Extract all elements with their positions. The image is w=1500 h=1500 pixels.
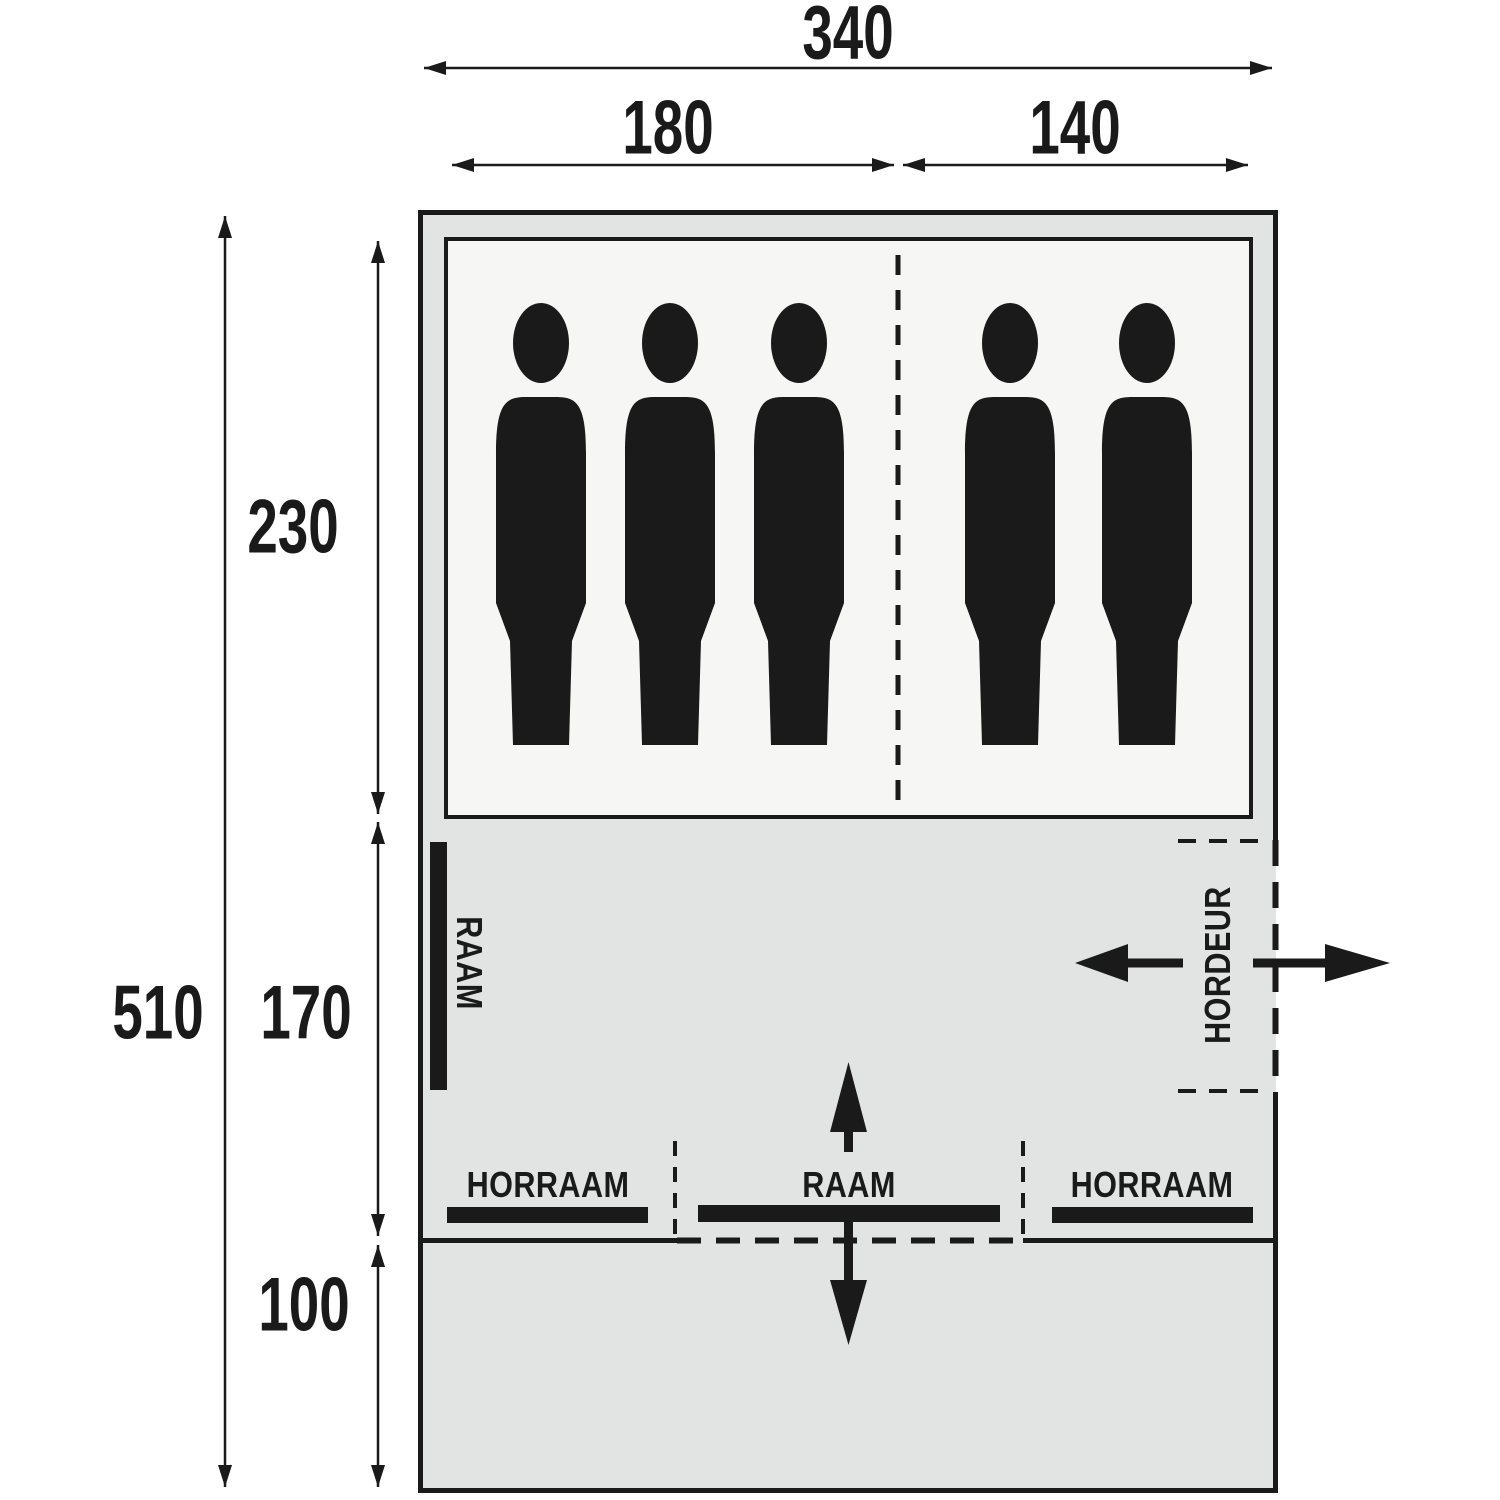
right-screen-window-label: HORRAAM	[1071, 1164, 1234, 1206]
floorplan-drawing	[0, 0, 1500, 1500]
sleeping-area	[446, 239, 1251, 817]
dim-340-label: 340	[802, 0, 893, 77]
dim-100-label: 100	[258, 1262, 349, 1349]
dim-180-label: 180	[622, 85, 713, 172]
front-window-bar	[698, 1205, 1000, 1222]
right-screen-window-bar	[1052, 1207, 1253, 1223]
tent-floorplan: 340 180 140 510 230 170 100 RAAM HORDEUR…	[0, 0, 1500, 1500]
left-screen-window-label: HORRAAM	[467, 1164, 630, 1206]
screen-door-label: HORDEUR	[1197, 886, 1239, 1044]
left-window	[430, 842, 447, 1090]
dim-170-label: 170	[260, 970, 351, 1057]
dim-510-label: 510	[112, 970, 203, 1057]
front-window-label: RAAM	[802, 1164, 895, 1206]
left-screen-window-bar	[447, 1207, 648, 1223]
left-window-label: RAAM	[448, 916, 490, 1009]
left-window-bar	[430, 842, 447, 1090]
dim-140-label: 140	[1029, 85, 1120, 172]
dim-230-label: 230	[247, 484, 338, 571]
